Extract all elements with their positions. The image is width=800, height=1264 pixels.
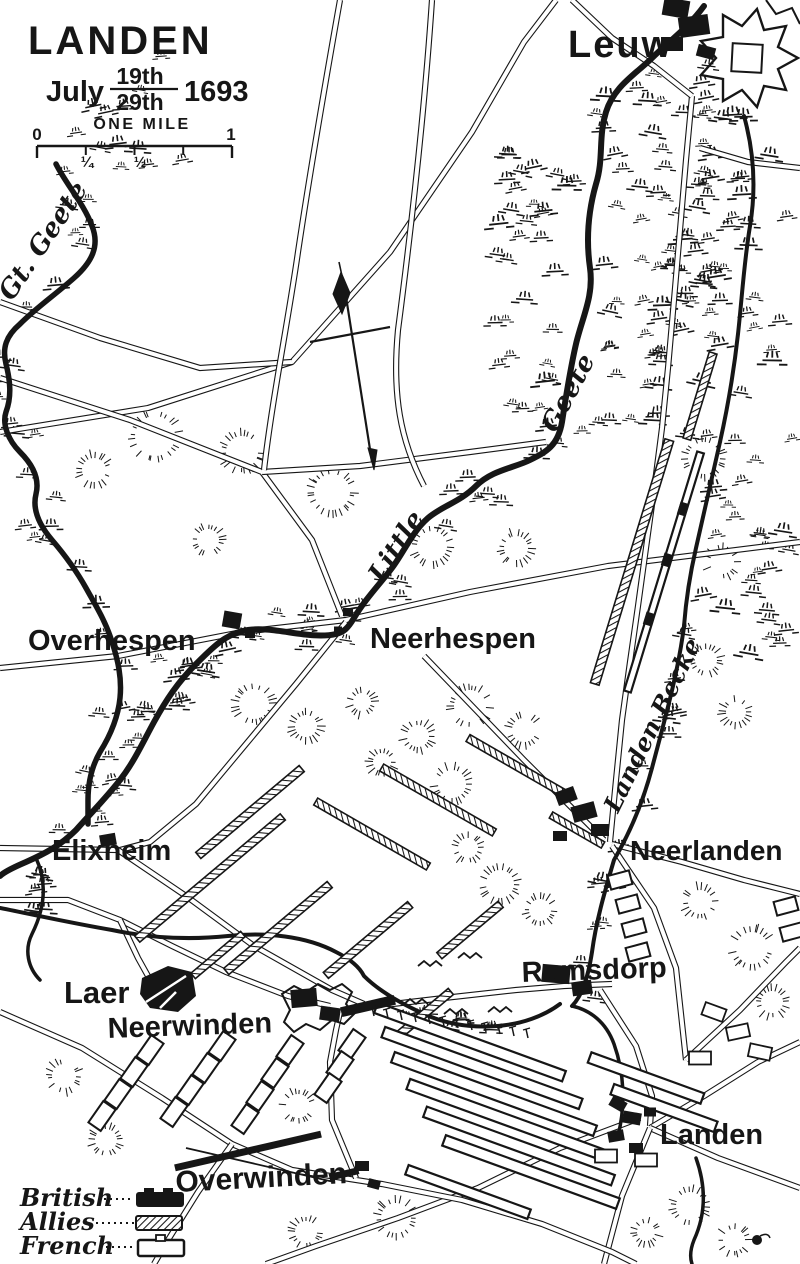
stream-bottom-right	[691, 1158, 704, 1264]
water-squiggle-3	[418, 961, 442, 966]
allied-line-1	[683, 352, 717, 440]
legend: British Allies French	[18, 1183, 184, 1260]
village-blob-7	[334, 627, 342, 634]
village-blob-20	[355, 1161, 369, 1171]
french-post-2	[622, 918, 647, 937]
british-camp-block-0	[677, 501, 689, 516]
compass-north-arrow	[310, 262, 390, 470]
scale-half: ½	[134, 154, 147, 171]
village-blob-18	[629, 1143, 643, 1153]
label-neerwinden: Neerwinden	[107, 1007, 272, 1045]
hill-17	[522, 892, 557, 926]
label-rumsdorp: Rumsdorp	[521, 952, 667, 989]
hill-15	[480, 863, 522, 906]
river-labels: Gt. Geete Little Geete Landen Becke	[0, 176, 707, 817]
label-leuw: Leuw	[568, 24, 673, 66]
hill-21	[717, 695, 752, 729]
hill-9	[345, 687, 379, 720]
date-denominator: 29th	[116, 89, 163, 115]
allied-line-11	[437, 901, 503, 959]
hill-8	[287, 708, 325, 745]
house-0	[701, 1002, 726, 1022]
village-blob-12	[570, 801, 597, 823]
british-camp-block-2	[643, 611, 655, 626]
village-blob-3	[696, 44, 716, 60]
label-elixheim: Elixheim	[52, 835, 171, 867]
road-core-23	[686, 948, 800, 1060]
hill-16	[452, 831, 484, 863]
hill-27	[630, 1217, 663, 1248]
hill-23	[681, 881, 718, 919]
french-post-4	[774, 896, 799, 915]
house-5	[635, 1154, 657, 1167]
village-blob-14	[553, 831, 567, 841]
village-blob-0	[662, 0, 691, 19]
legend-symbol-french	[138, 1235, 184, 1256]
hill-10	[399, 720, 436, 755]
road-core-1	[0, 302, 292, 368]
village-blob-1	[678, 14, 710, 38]
village-blob-4	[222, 611, 243, 630]
allied-line-7	[314, 798, 431, 870]
water-squiggle-4	[458, 953, 482, 958]
label-neerlanden: Neerlanden	[630, 835, 783, 866]
leuw-fort-keep	[731, 43, 762, 73]
water-squiggle-2	[488, 1007, 512, 1012]
battle-map-of-landen: LANDEN July 19th 29th 1693 ONE MILE 0 1 …	[0, 0, 800, 1264]
scale-one: 1	[226, 125, 235, 144]
label-landen: Landen	[660, 1119, 763, 1151]
scale-zero: 0	[32, 125, 41, 144]
date-year: 1693	[184, 76, 249, 108]
corner-fort-works	[766, 0, 800, 24]
french-post-5	[780, 922, 800, 941]
legend-symbol-allies	[136, 1216, 182, 1230]
british-camp-block-1	[661, 552, 673, 567]
house-1	[726, 1023, 750, 1040]
map-title: LANDEN	[28, 19, 213, 63]
village-blob-6	[343, 608, 353, 616]
bottom-right-mark-tail	[760, 1234, 770, 1238]
hill-4	[193, 523, 227, 555]
house-2	[748, 1043, 772, 1060]
marsh-zone-2	[689, 138, 800, 661]
compass-needle	[344, 284, 372, 462]
label-neerhespen: Neerhespen	[370, 623, 536, 655]
hill-3	[307, 467, 359, 518]
label-great-geete: Gt. Geete	[0, 176, 94, 306]
scale-quarter: ¼	[81, 154, 95, 171]
hill-22	[728, 924, 772, 971]
label-little: Little	[362, 506, 431, 589]
hill-6	[497, 528, 536, 567]
palisade-tick-5	[442, 1017, 444, 1026]
palisade-tick-11	[526, 1029, 528, 1038]
label-laer: Laer	[64, 975, 129, 1010]
village-blob-21	[367, 1178, 381, 1190]
date-numerator: 19th	[116, 63, 163, 89]
village-blob-22	[290, 988, 317, 1008]
hill-26	[718, 1223, 753, 1257]
road-core-4	[264, 0, 340, 470]
palisade-tick-10	[512, 1027, 514, 1036]
hill-30	[279, 1088, 314, 1123]
house-4	[595, 1150, 617, 1163]
road-core-5	[396, 0, 432, 486]
allied-line-6	[323, 902, 412, 979]
road-casing-1	[0, 302, 292, 368]
hill-31	[46, 1059, 83, 1097]
label-landen-becke: Landen Becke	[597, 633, 707, 817]
village-blob-19	[644, 1108, 656, 1117]
village-blob-13	[591, 824, 609, 836]
hill-2	[75, 450, 111, 489]
marsh-band-3	[19, 864, 59, 917]
legend-label-french: French	[19, 1231, 114, 1260]
date-month: July	[46, 76, 104, 108]
label-overhespen: Overhespen	[28, 625, 196, 657]
village-blob-5	[245, 630, 255, 638]
scale-caption: ONE MILE	[93, 116, 190, 133]
house-3	[689, 1052, 711, 1065]
french-post-1	[616, 894, 641, 913]
village-blob-23	[319, 1006, 341, 1023]
